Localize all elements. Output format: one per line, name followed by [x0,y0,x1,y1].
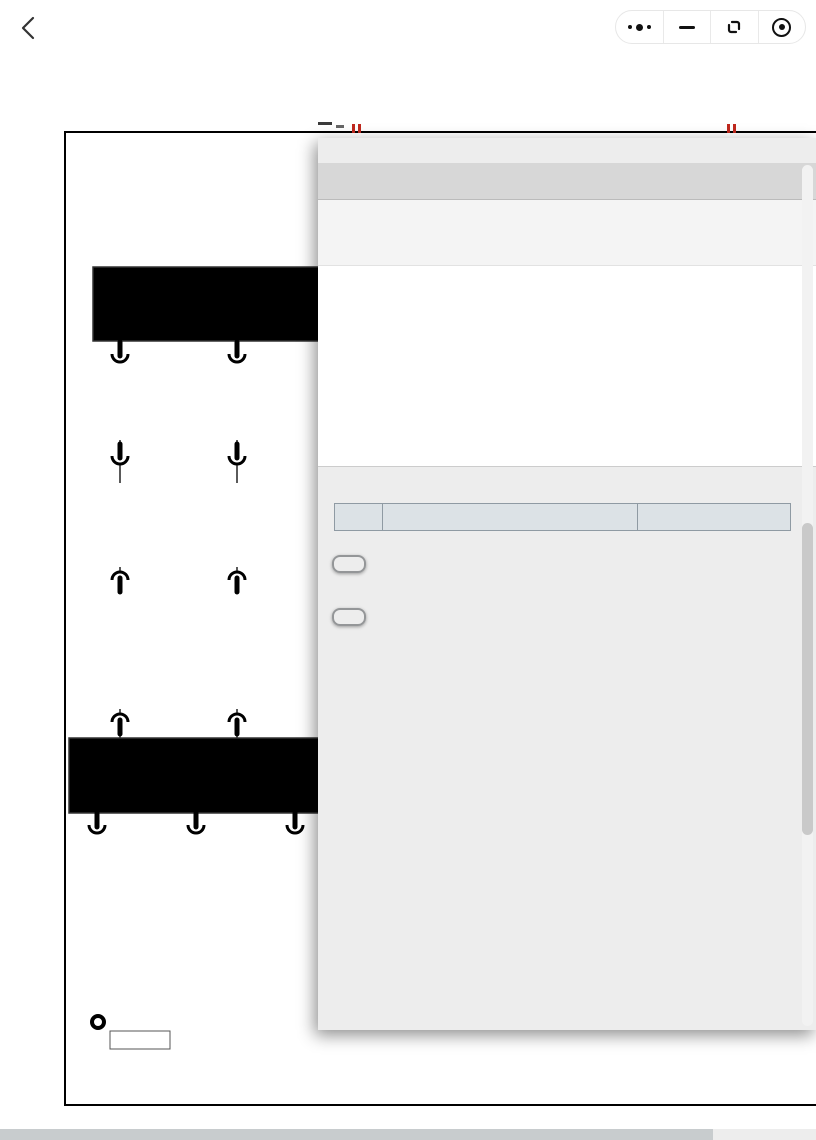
horizontal-scrollbar-thumb[interactable] [0,1129,713,1140]
pin-table [334,503,791,531]
component-code [318,163,816,200]
diagram-fragment [352,124,361,133]
info-modal [318,138,816,1030]
restore-button[interactable] [710,11,758,43]
harness-layout-button[interactable] [332,555,366,573]
horizontal-scrollbar [0,1129,816,1140]
connector-symbol[interactable] [229,342,245,362]
diagram-fragment [727,124,736,133]
pin-table-header-row [335,504,791,531]
connector-symbol[interactable] [229,444,245,464]
top-bar [0,0,816,56]
modal-scrollbar [802,165,813,1026]
pin-table-header [638,504,791,531]
minimize-button[interactable] [663,11,711,43]
more-icon [628,24,651,31]
connector-pinout-image [436,276,778,459]
diagram-fragment [336,125,344,128]
close-circle-button[interactable] [758,11,806,43]
component-description [318,200,816,266]
minimize-icon [679,26,695,29]
connector-symbol[interactable] [112,572,128,592]
wire-leads [120,341,237,738]
connector-symbol[interactable] [188,813,204,833]
ground-point-button[interactable] [332,608,366,626]
pin-table-header [383,504,638,531]
modal-header [318,138,816,163]
modal-spacer [318,467,816,503]
connector-symbol[interactable] [112,714,128,734]
splice-label-box [110,1031,170,1049]
pin-table-header [335,504,383,531]
connector-symbol[interactable] [112,444,128,464]
connector-image-panel [318,266,816,467]
connector-symbol[interactable] [229,572,245,592]
modal-scrollbar-thumb[interactable] [802,523,813,835]
diagram-fragment [318,122,332,125]
splice-point[interactable] [92,1016,104,1028]
connector-symbol[interactable] [229,714,245,734]
window-capsule [615,10,806,44]
target-icon [772,18,791,37]
connector-symbol[interactable] [112,342,128,362]
connector-symbol[interactable] [89,813,105,833]
back-icon[interactable] [14,12,44,44]
connector-symbol[interactable] [287,813,303,833]
wire-blue-striped [117,364,124,709]
more-button[interactable] [616,11,663,43]
restore-icon [726,19,742,35]
